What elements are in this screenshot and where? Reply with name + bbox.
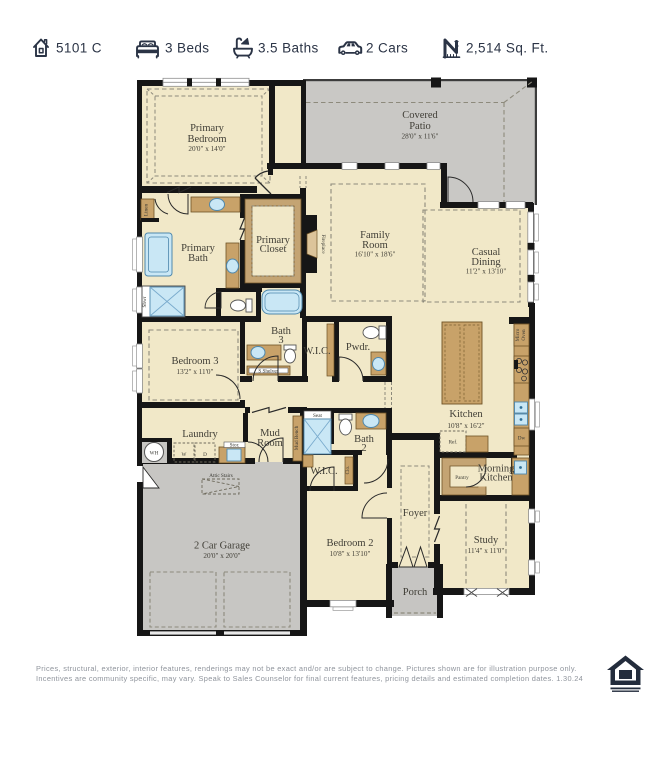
svg-text:D: D xyxy=(203,452,207,458)
svg-text:Fireplace: Fireplace xyxy=(320,234,326,254)
svg-text:3.5 Baths: 3.5 Baths xyxy=(258,41,319,56)
svg-text:Bedroom 2: Bedroom 2 xyxy=(327,538,374,549)
svg-text:Shwr: Shwr xyxy=(142,296,148,307)
svg-text:W.I.C.: W.I.C. xyxy=(303,346,330,357)
svg-text:S Shelves: S Shelves xyxy=(258,369,278,375)
svg-text:Pantry: Pantry xyxy=(455,475,469,481)
svg-text:2 Cars: 2 Cars xyxy=(366,41,408,56)
svg-text:Closet: Closet xyxy=(260,244,287,255)
svg-text:5101 C: 5101 C xyxy=(56,41,102,56)
svg-text:Bedroom 3: Bedroom 3 xyxy=(172,356,219,367)
svg-text:13'2" x 11'0": 13'2" x 11'0" xyxy=(177,368,214,376)
svg-text:Mud Bench: Mud Bench xyxy=(294,425,300,450)
svg-text:11'2" x 13'10": 11'2" x 13'10" xyxy=(466,268,507,276)
svg-text:Covered: Covered xyxy=(402,110,438,121)
svg-text:W: W xyxy=(182,452,187,458)
svg-text:28'0" x 11'6": 28'0" x 11'6" xyxy=(402,133,439,141)
svg-text:10'8" x 13'10": 10'8" x 13'10" xyxy=(330,550,371,558)
svg-text:Dining: Dining xyxy=(471,257,501,268)
svg-text:Primary: Primary xyxy=(190,123,225,134)
svg-text:Kitchen: Kitchen xyxy=(479,473,513,484)
svg-text:Ref.: Ref. xyxy=(449,439,458,446)
svg-text:Bedroom: Bedroom xyxy=(187,134,226,145)
svg-text:20'0" x 20'0": 20'0" x 20'0" xyxy=(203,552,240,560)
svg-text:16'10" x 18'6": 16'10" x 18'6" xyxy=(355,251,396,259)
svg-text:Study: Study xyxy=(474,535,499,546)
svg-text:3 Beds: 3 Beds xyxy=(165,41,209,56)
svg-text:Clo.: Clo. xyxy=(345,466,351,475)
svg-text:2 Car Garage: 2 Car Garage xyxy=(194,541,250,552)
svg-text:Room: Room xyxy=(362,240,388,251)
svg-text:Linen: Linen xyxy=(144,204,150,217)
svg-text:3: 3 xyxy=(278,335,283,346)
svg-text:2: 2 xyxy=(361,443,366,454)
svg-text:Porch: Porch xyxy=(403,587,428,598)
svg-text:Seat: Seat xyxy=(313,413,322,419)
svg-text:11'4" x 11'0": 11'4" x 11'0" xyxy=(468,547,505,555)
svg-text:2,514 Sq. Ft.: 2,514 Sq. Ft. xyxy=(466,41,549,56)
svg-text:Patio: Patio xyxy=(409,121,431,132)
svg-text:Kitchen: Kitchen xyxy=(449,409,483,420)
svg-text:20'0" x 14'0": 20'0" x 14'0" xyxy=(188,145,225,153)
svg-text:Pwdr.: Pwdr. xyxy=(346,342,370,353)
svg-text:Incentives are community speci: Incentives are community specific, may v… xyxy=(36,674,583,683)
svg-text:Foyer: Foyer xyxy=(403,508,428,519)
svg-text:Oven: Oven xyxy=(521,329,527,341)
svg-text:10'8" x 16'2": 10'8" x 16'2" xyxy=(447,422,484,430)
svg-text:WH: WH xyxy=(150,451,159,457)
svg-text:Laundry: Laundry xyxy=(182,429,218,440)
svg-text:Stor.: Stor. xyxy=(230,443,240,449)
svg-text:Bath: Bath xyxy=(188,253,209,264)
svg-text:Attic Stairs: Attic Stairs xyxy=(209,473,233,479)
svg-text:Dw: Dw xyxy=(518,436,526,442)
svg-text:Prices, structural, exterior,: Prices, structural, exterior, interior f… xyxy=(36,664,577,673)
